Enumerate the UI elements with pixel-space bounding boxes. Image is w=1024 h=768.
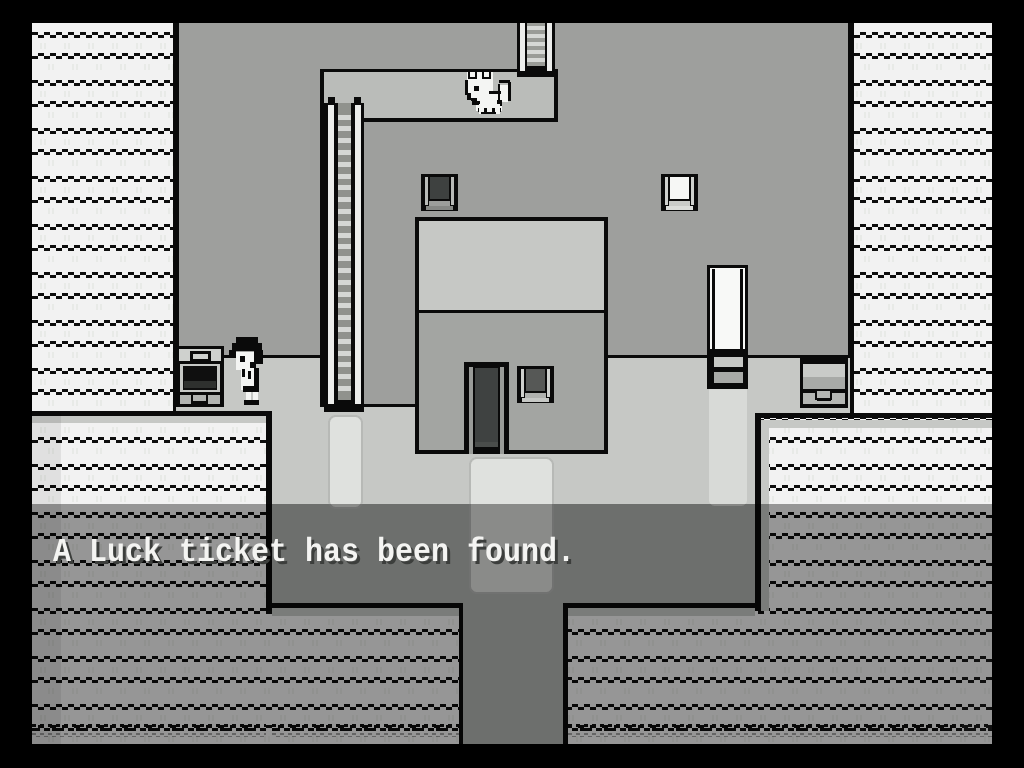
svg-text:A Luck ticket has been found.: A Luck ticket has been found. xyxy=(53,534,575,571)
